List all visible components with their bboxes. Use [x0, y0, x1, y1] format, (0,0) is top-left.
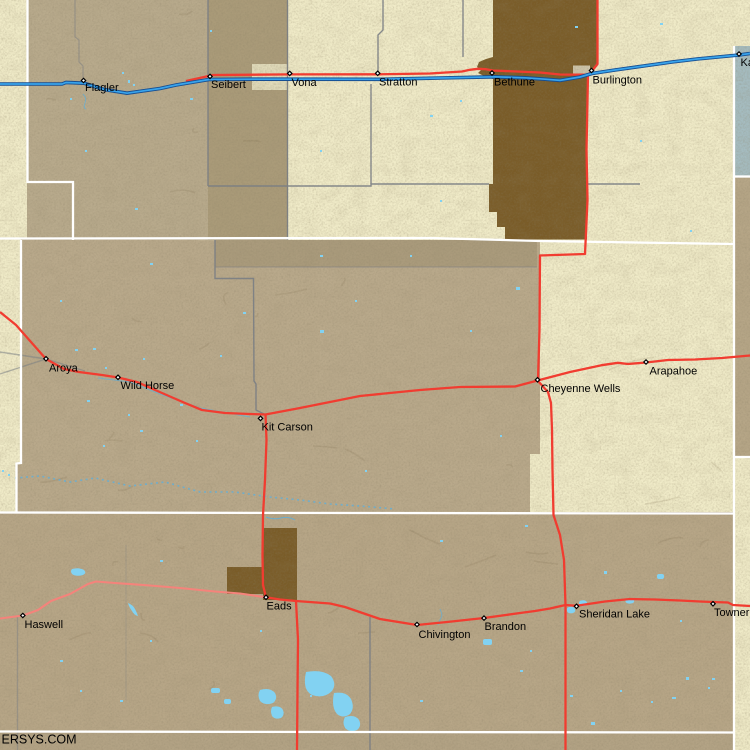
svg-text:Vona: Vona	[292, 77, 318, 89]
svg-text:Arapahoe: Arapahoe	[650, 366, 698, 378]
svg-text:Wild Horse: Wild Horse	[121, 380, 175, 392]
svg-text:Eads: Eads	[267, 601, 293, 613]
svg-text:Kit Carson: Kit Carson	[262, 422, 313, 434]
svg-text:ERSYS.COM: ERSYS.COM	[2, 733, 77, 747]
svg-text:Haswell: Haswell	[25, 619, 64, 631]
svg-text:Aroya: Aroya	[49, 363, 79, 375]
svg-text:Brandon: Brandon	[485, 621, 527, 633]
svg-text:Ka: Ka	[741, 57, 750, 69]
svg-text:Seibert: Seibert	[211, 79, 246, 91]
svg-text:Towner: Towner	[714, 607, 750, 619]
svg-text:Bethune: Bethune	[494, 77, 535, 89]
svg-text:Chivington: Chivington	[419, 629, 471, 641]
svg-text:Burlington: Burlington	[593, 75, 643, 87]
svg-text:Sheridan Lake: Sheridan Lake	[579, 609, 650, 621]
svg-text:Stratton: Stratton	[379, 77, 418, 89]
svg-text:Cheyenne Wells: Cheyenne Wells	[541, 383, 621, 395]
svg-text:Flagler: Flagler	[85, 82, 119, 94]
